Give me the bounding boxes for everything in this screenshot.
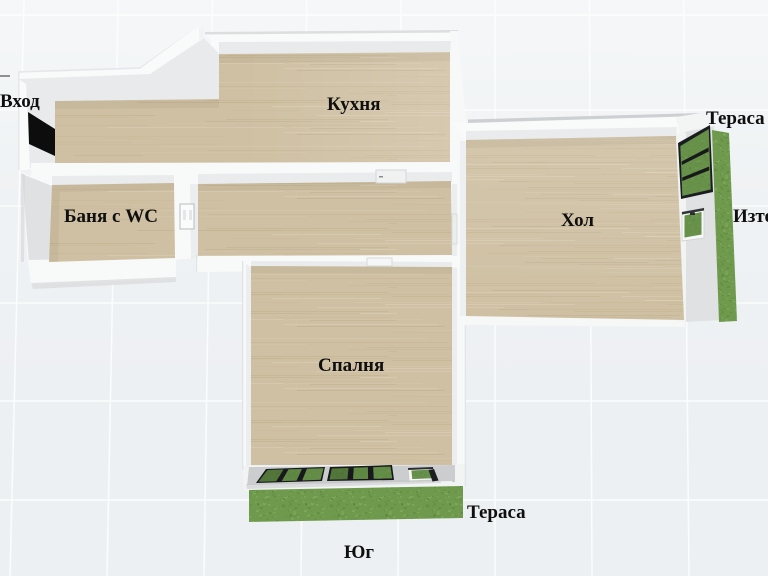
svg-text:Спалня: Спалня (318, 355, 384, 376)
svg-text:Вход: Вход (0, 91, 40, 112)
svg-text:Изток: Изток (733, 206, 768, 227)
svg-text:Тераса: Тераса (467, 502, 526, 523)
svg-text:Хол: Хол (561, 210, 594, 231)
svg-text:Кухня: Кухня (327, 94, 381, 115)
svg-text:Баня с WC: Баня с WC (64, 206, 158, 227)
svg-text:Тераса: Тераса (706, 108, 765, 129)
svg-text:Юг: Юг (344, 542, 374, 563)
